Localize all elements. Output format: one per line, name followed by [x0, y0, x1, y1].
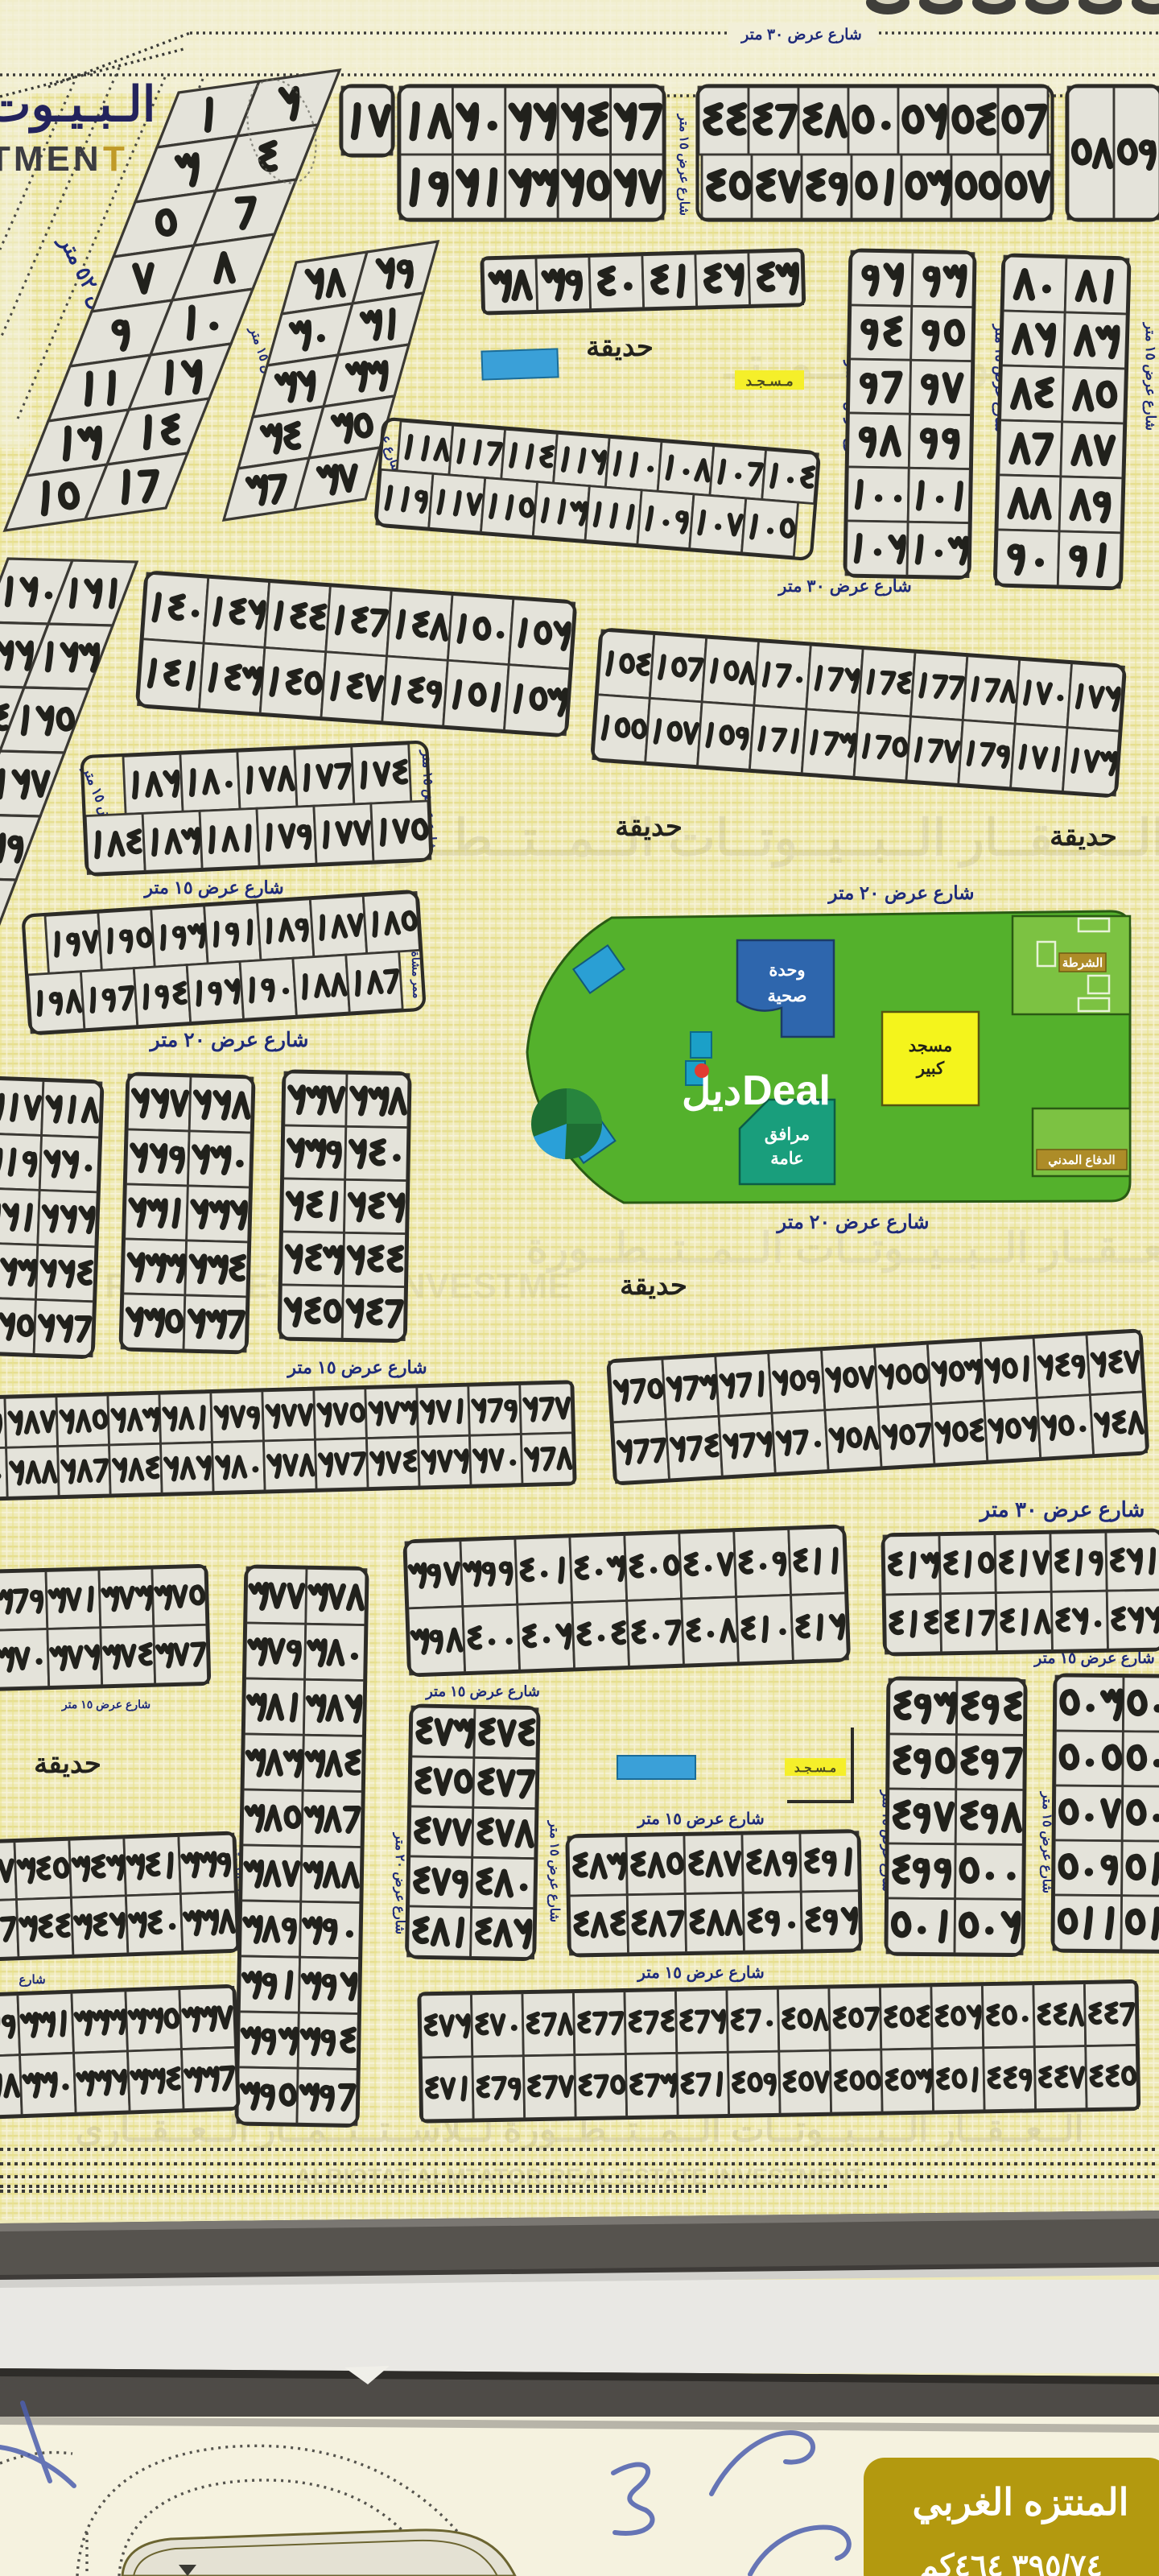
svg-text:شارع عرض ٢٠ متر: شارع عرض ٢٠ متر [775, 1212, 929, 1234]
svg-text:مرافق: مرافق [765, 1125, 810, 1145]
svg-text:الــعــقــار الــبــيــوتــات: الــعــقــار الــبــيــوتــات الــمــتــ… [348, 811, 1159, 869]
svg-text:شارع: شارع [19, 1973, 45, 1987]
svg-text:مـسـجـد: مـسـجـد [794, 1761, 836, 1775]
svg-text:ديل: ديل [682, 1068, 741, 1113]
svg-text:TMEN: TMEN [0, 139, 102, 179]
svg-text:حديقة: حديقة [1050, 821, 1117, 852]
svg-text:شارع عرض ١٥ متر: شارع عرض ١٥ متر [636, 1810, 765, 1829]
svg-text:شارع عرض ١٥ متر: شارع عرض ١٥ متر [1142, 321, 1158, 431]
svg-text:شارع عرض ١٥ متر: شارع عرض ١٥ متر [424, 1683, 540, 1700]
svg-text:شارع عرض ١٥ متر: شارع عرض ١٥ متر [636, 1964, 765, 1983]
svg-text:عامة: عامة [770, 1150, 803, 1168]
svg-text:شارع عرض ١٥ متر: شارع عرض ١٥ متر [142, 877, 283, 898]
svg-text:صحية: صحية [768, 987, 807, 1005]
svg-text:شارع عرض ١٥ متر: شارع عرض ١٥ متر [286, 1357, 427, 1378]
svg-text:المنتزه الغربي: المنتزه الغربي [913, 2481, 1129, 2524]
svg-text:حديقة: حديقة [620, 1270, 687, 1301]
svg-text:Deal: Deal [742, 1067, 831, 1114]
svg-text:الـبـيـوت: الـبـيـوت [0, 77, 155, 134]
svg-text:شارع عرض ٣٠ متر: شارع عرض ٣٠ متر [777, 577, 911, 597]
svg-text:شارع عرض ١٥ متر: شارع عرض ١٥ متر [547, 1820, 561, 1922]
svg-text:حديقة: حديقة [586, 332, 654, 362]
svg-text:شارع عرض ٢٠ متر: شارع عرض ٢٠ متر [149, 1029, 309, 1052]
svg-text:شارع عرض ٢٠ متر: شارع عرض ٢٠ متر [827, 882, 974, 905]
svg-text:شارع عرض ١٥ متر: شارع عرض ١٥ متر [676, 114, 691, 216]
svg-text:شارع عرض ١٥ متر: شارع عرض ١٥ متر [61, 1698, 151, 1711]
svg-text:٣٩٥/٧٤ ٤٦٤كم: ٣٩٥/٧٤ ٤٦٤كم [919, 2549, 1103, 2576]
svg-text:حديقة: حديقة [34, 1748, 101, 1779]
svg-text:شارع عرض ٣٠ متر: شارع عرض ٣٠ متر [979, 1497, 1145, 1522]
svg-text:حديقة: حديقة [615, 811, 683, 842]
svg-text:الشرطة: الشرطة [1062, 956, 1103, 970]
svg-text:شارع عرض ٣٠ متر: شارع عرض ٣٠ متر [740, 27, 862, 43]
svg-text:شارع عرض ٢٠ متر: شارع عرض ٢٠ متر [392, 1832, 406, 1934]
svg-text:الدفاع المدني: الدفاع المدني [1048, 1154, 1115, 1168]
svg-text:مسجد: مسجد [909, 1037, 953, 1055]
svg-text:وحدة: وحدة [769, 961, 805, 980]
svg-text:مـسـجـد: مـسـجـد [745, 374, 793, 389]
svg-text:كبير: كبير [915, 1059, 945, 1079]
svg-text:T: T [103, 139, 125, 179]
